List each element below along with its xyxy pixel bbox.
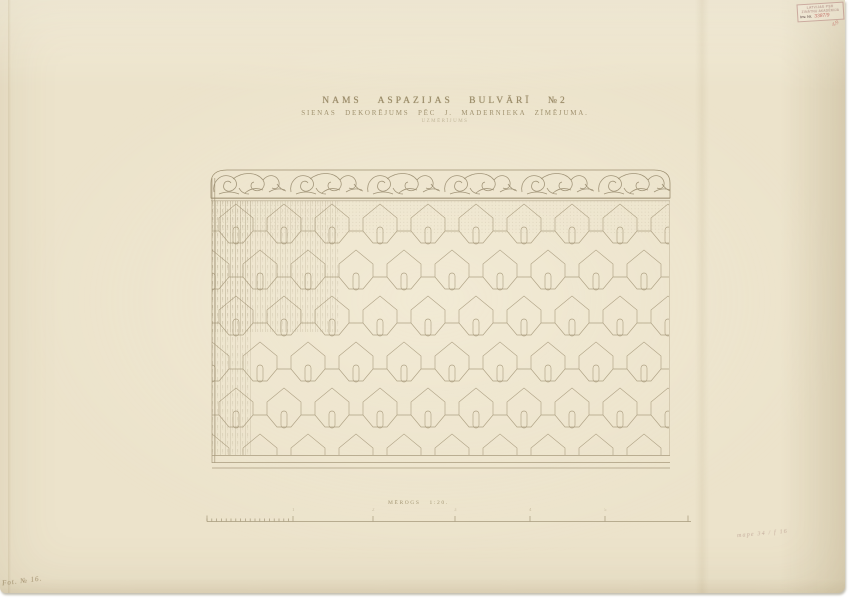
title-block: NAMS ASPAZIJAS BULVĀRĪ №2 SIENAS DEKORĒJ… [185,96,705,124]
stamp-corner-note: 4/9 [831,20,840,29]
scale-tick-number: 3 [454,508,457,513]
scale-word: MĒROGS [388,500,421,506]
handwritten-note-bottom-right: mape 34 / f 16 [737,529,788,539]
wall-decoration-drawing [209,167,672,471]
stamp-inv-label: Inv. Nr. [800,14,812,19]
handwritten-note-bottom-left: Fot. № 16. [2,575,43,588]
frieze-band [211,170,670,201]
drawing-title: NAMS ASPAZIJAS BULVĀRĪ №2 [185,96,705,106]
scale-ratio: 1:20. [430,500,449,506]
stamp-inv-number: 3387/9 [814,13,830,18]
scale-tick-number: 5 [604,508,607,513]
drawing-subnote: UZMĒRĪJUMS [185,119,705,124]
detailed-left-column [212,201,252,455]
scale-tick-number: 4 [529,508,532,513]
ornament-pattern-svg [209,167,672,471]
scale-tick-number: 1 [292,508,295,513]
drawing-subtitle: SIENAS DEKORĒJUMS PĒC J. MADERNIEKA ZĪMĒ… [185,109,705,117]
scale-label: MĒROGS1:20. [388,500,449,506]
lattice-field [212,201,669,455]
scale-bar: MĒROGS1:20. 1 2 3 4 5 [205,499,695,527]
scale-bar-line [205,514,695,526]
paper-sheet: NAMS ASPAZIJAS BULVĀRĪ №2 SIENAS DEKORĒJ… [0,0,845,593]
scale-tick-number: 2 [372,508,375,513]
